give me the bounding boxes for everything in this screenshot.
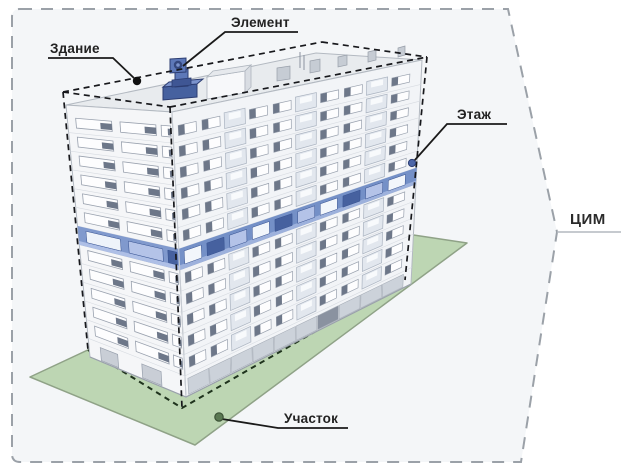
window-pane <box>251 187 257 198</box>
floor-label: Этаж <box>457 107 491 122</box>
window-pane <box>182 208 188 220</box>
window-pane <box>205 201 211 212</box>
bim-diagram-canvas: ЦИМ Здание Элемент Этаж Участок <box>0 0 624 471</box>
window-pane <box>204 160 210 171</box>
window-pane <box>204 181 210 192</box>
window-pane <box>392 77 398 86</box>
window-pane <box>183 229 189 241</box>
building-label: Здание <box>50 41 100 56</box>
bim-element-collar <box>172 78 191 87</box>
building-anchor-dot <box>133 77 141 85</box>
window-pane <box>181 187 188 198</box>
window-pane <box>178 124 185 135</box>
window-pane <box>274 161 280 172</box>
window-pane <box>250 148 256 159</box>
window-pane <box>344 87 350 97</box>
window-pane <box>179 145 186 156</box>
site-label: Участок <box>284 411 338 426</box>
roof-equipment-box <box>277 66 290 81</box>
model-label: ЦИМ <box>570 211 606 228</box>
floor-anchor-dot <box>408 159 415 166</box>
window-pane <box>321 111 327 121</box>
window-pane <box>344 105 350 115</box>
roof-equipment-box <box>310 59 320 73</box>
window-pane <box>145 127 157 135</box>
bim-element-head-dial-center <box>176 63 180 67</box>
window-pane <box>251 167 257 178</box>
window-pane <box>273 103 279 113</box>
element-label: Элемент <box>231 15 290 30</box>
window-pane <box>274 142 280 152</box>
window-pane <box>146 147 158 155</box>
window-pane <box>321 93 327 103</box>
site-anchor-dot <box>215 413 223 421</box>
window-pane <box>320 148 326 158</box>
window-pane <box>273 122 279 132</box>
window-pane <box>203 139 210 150</box>
window-pane <box>250 128 256 139</box>
window-pane <box>202 119 209 130</box>
window-pane <box>321 129 327 139</box>
window-pane <box>391 94 397 103</box>
roof-equipment-box <box>368 50 376 62</box>
window-pane <box>274 180 280 191</box>
roof-equipment-box <box>338 55 347 67</box>
window-pane <box>249 108 255 118</box>
window-pane <box>344 123 350 133</box>
bim-structure-diagram: ЦИМ Здание Элемент Этаж Участок <box>0 0 624 471</box>
roof-equipment-box <box>398 46 405 57</box>
window-pane <box>206 222 212 233</box>
window-pane <box>180 166 187 177</box>
window-pane <box>100 123 112 130</box>
